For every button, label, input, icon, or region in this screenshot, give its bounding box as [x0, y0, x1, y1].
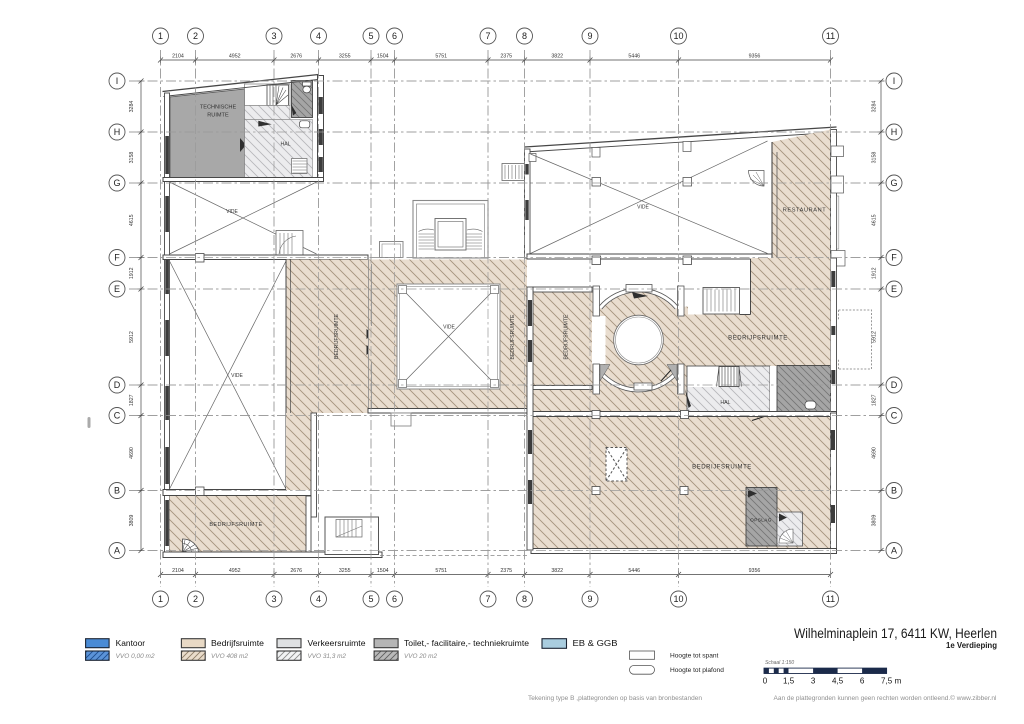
svg-text:Wilhelminaplein 17, 6411 KW, H: Wilhelminaplein 17, 6411 KW, Heerlen [794, 625, 997, 641]
svg-text:I: I [893, 76, 896, 86]
svg-text:H: H [114, 127, 121, 137]
svg-text:5751: 5751 [435, 568, 447, 574]
svg-text:Tekening type B ,plattegronden: Tekening type B ,plattegronden op basis … [528, 695, 702, 702]
svg-text:Verkeersruimte: Verkeersruimte [308, 638, 366, 648]
svg-text:F: F [114, 253, 120, 263]
svg-text:3: 3 [271, 594, 276, 604]
svg-text:D: D [891, 380, 898, 390]
svg-text:VIDE: VIDE [443, 325, 455, 331]
svg-text:9: 9 [587, 594, 592, 604]
svg-text:2: 2 [193, 31, 198, 41]
svg-text:11: 11 [826, 594, 835, 604]
svg-text:3822: 3822 [551, 568, 563, 574]
svg-text:8: 8 [522, 31, 527, 41]
svg-text:3255: 3255 [339, 568, 351, 574]
svg-text:BEDRIJFSRUIMTE: BEDRIJFSRUIMTE [728, 336, 788, 342]
svg-text:F: F [891, 253, 897, 263]
svg-text:1827: 1827 [129, 394, 135, 406]
svg-text:2375: 2375 [500, 54, 512, 60]
svg-text:E: E [891, 284, 897, 294]
svg-text:C: C [114, 411, 121, 421]
svg-text:10: 10 [673, 31, 683, 41]
svg-text:VVO 20 m2: VVO 20 m2 [404, 653, 437, 660]
svg-text:BEDRIJFSRUIMTE: BEDRIJFSRUIMTE [692, 465, 752, 471]
svg-text:Schaal 1:150: Schaal 1:150 [765, 660, 794, 666]
svg-text:1912: 1912 [129, 267, 135, 279]
svg-text:5912: 5912 [872, 331, 878, 343]
svg-text:1,5: 1,5 [783, 676, 795, 685]
svg-text:4952: 4952 [229, 568, 241, 574]
svg-text:RESTAURANT: RESTAURANT [783, 208, 827, 214]
svg-text:Hoogte tot plafond: Hoogte tot plafond [670, 667, 724, 674]
svg-text:Hoogte tot spant: Hoogte tot spant [670, 653, 719, 660]
svg-text:I: I [116, 76, 119, 86]
svg-text:11: 11 [826, 31, 835, 41]
svg-text:B: B [114, 486, 120, 496]
svg-text:9356: 9356 [749, 54, 761, 60]
svg-text:3809: 3809 [872, 515, 878, 527]
svg-text:1: 1 [158, 31, 163, 41]
svg-text:BEDRIJFSRUIMTE: BEDRIJFSRUIMTE [510, 314, 516, 360]
svg-text:B: B [891, 486, 897, 496]
svg-text:VVO 0,00 m2: VVO 0,00 m2 [116, 653, 155, 660]
svg-text:6: 6 [392, 594, 397, 604]
svg-text:10: 10 [673, 594, 683, 604]
svg-text:4690: 4690 [872, 447, 878, 459]
svg-text:Bedrijfsruimte: Bedrijfsruimte [211, 638, 264, 648]
svg-text:6: 6 [860, 676, 865, 685]
svg-text:5912: 5912 [129, 331, 135, 343]
svg-text:1e Verdieping: 1e Verdieping [946, 641, 997, 650]
svg-text:3284: 3284 [872, 101, 878, 113]
svg-text:3158: 3158 [872, 152, 878, 164]
svg-text:7: 7 [485, 31, 490, 41]
svg-text:m: m [895, 676, 902, 685]
svg-text:5: 5 [368, 31, 373, 41]
svg-text:3284: 3284 [129, 101, 135, 113]
svg-text:RUIMTE: RUIMTE [207, 113, 229, 119]
svg-text:3255: 3255 [339, 54, 351, 60]
svg-text:3809: 3809 [129, 515, 135, 527]
svg-text:4615: 4615 [129, 214, 135, 226]
svg-text:5751: 5751 [435, 54, 447, 60]
svg-text:5446: 5446 [628, 568, 640, 574]
svg-text:1: 1 [158, 594, 163, 604]
svg-text:6: 6 [392, 31, 397, 41]
svg-text:VIDE: VIDE [226, 209, 238, 215]
svg-text:0: 0 [763, 676, 768, 685]
svg-text:9356: 9356 [749, 568, 761, 574]
svg-text:C: C [891, 411, 898, 421]
svg-text:Toilet,- facilitaire,- technie: Toilet,- facilitaire,- techniekruimte [404, 638, 529, 648]
svg-text:9: 9 [587, 31, 592, 41]
svg-text:3158: 3158 [129, 152, 135, 164]
svg-text:7,5: 7,5 [881, 676, 893, 685]
svg-text:4690: 4690 [129, 447, 135, 459]
svg-text:2104: 2104 [172, 54, 184, 60]
svg-text:2375: 2375 [500, 568, 512, 574]
svg-text:2676: 2676 [290, 54, 302, 60]
svg-text:7: 7 [485, 594, 490, 604]
svg-text:G: G [113, 178, 120, 188]
svg-text:A: A [891, 546, 897, 556]
svg-text:3: 3 [271, 31, 276, 41]
svg-text:EB & GGB: EB & GGB [573, 638, 618, 648]
svg-text:E: E [114, 284, 120, 294]
svg-text:D: D [114, 380, 121, 390]
svg-text:3: 3 [811, 676, 816, 685]
svg-text:2104: 2104 [172, 568, 184, 574]
svg-text:Aan de plattegronden kunnen ge: Aan de plattegronden kunnen geen rechten… [774, 694, 998, 702]
svg-text:VVO 408 m2: VVO 408 m2 [211, 653, 248, 660]
svg-text:BEDRIJFSRUIMTE: BEDRIJFSRUIMTE [209, 522, 262, 528]
svg-text:TECHNISCHE: TECHNISCHE [200, 105, 237, 111]
svg-text:H: H [891, 127, 898, 137]
svg-text:5446: 5446 [628, 54, 640, 60]
svg-text:HAL: HAL [720, 400, 730, 406]
svg-text:2676: 2676 [290, 568, 302, 574]
svg-text:OPSLAG: OPSLAG [750, 518, 772, 523]
svg-text:4: 4 [316, 31, 321, 41]
svg-text:1827: 1827 [872, 394, 878, 406]
svg-text:BEDRIJFSRUIMTE: BEDRIJFSRUIMTE [564, 314, 570, 360]
svg-text:5: 5 [368, 594, 373, 604]
svg-text:VIDE: VIDE [637, 205, 649, 211]
svg-text:2: 2 [193, 594, 198, 604]
svg-text:Kantoor: Kantoor [116, 638, 146, 648]
svg-text:1912: 1912 [872, 267, 878, 279]
svg-text:HAL: HAL [280, 142, 290, 148]
svg-text:8: 8 [522, 594, 527, 604]
svg-text:4952: 4952 [229, 54, 241, 60]
svg-text:VVO 31,3 m2: VVO 31,3 m2 [308, 653, 347, 660]
svg-text:G: G [890, 178, 897, 188]
svg-text:BEDRIJFSRUIMTE: BEDRIJFSRUIMTE [334, 313, 340, 359]
svg-text:A: A [114, 546, 120, 556]
svg-text:1504: 1504 [377, 54, 389, 60]
svg-text:4,5: 4,5 [832, 676, 844, 685]
svg-text:3822: 3822 [551, 54, 563, 60]
svg-text:1504: 1504 [377, 568, 389, 574]
svg-text:4: 4 [316, 594, 321, 604]
svg-text:VIDE: VIDE [231, 373, 243, 379]
svg-text:4615: 4615 [872, 214, 878, 226]
